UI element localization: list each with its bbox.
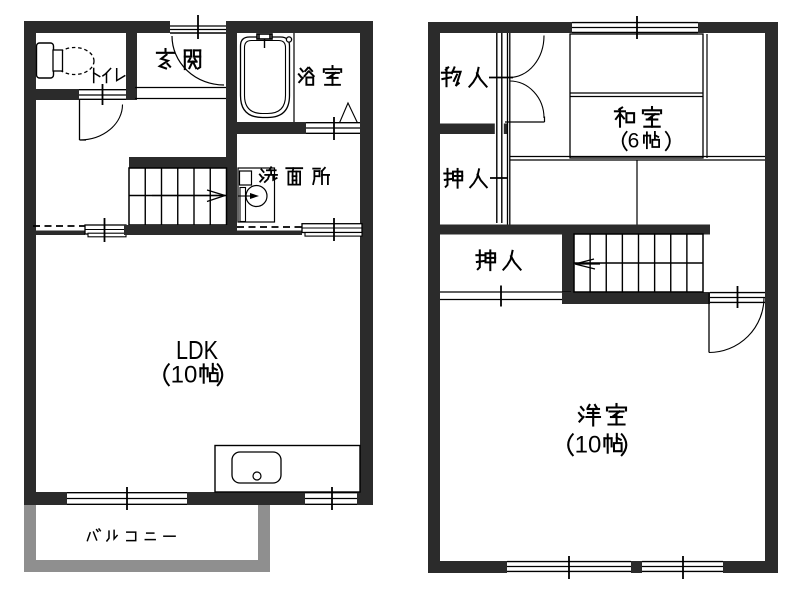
svg-text:10: 10: [171, 361, 198, 388]
svg-text:6: 6: [628, 130, 640, 153]
svg-text:10: 10: [575, 431, 602, 458]
